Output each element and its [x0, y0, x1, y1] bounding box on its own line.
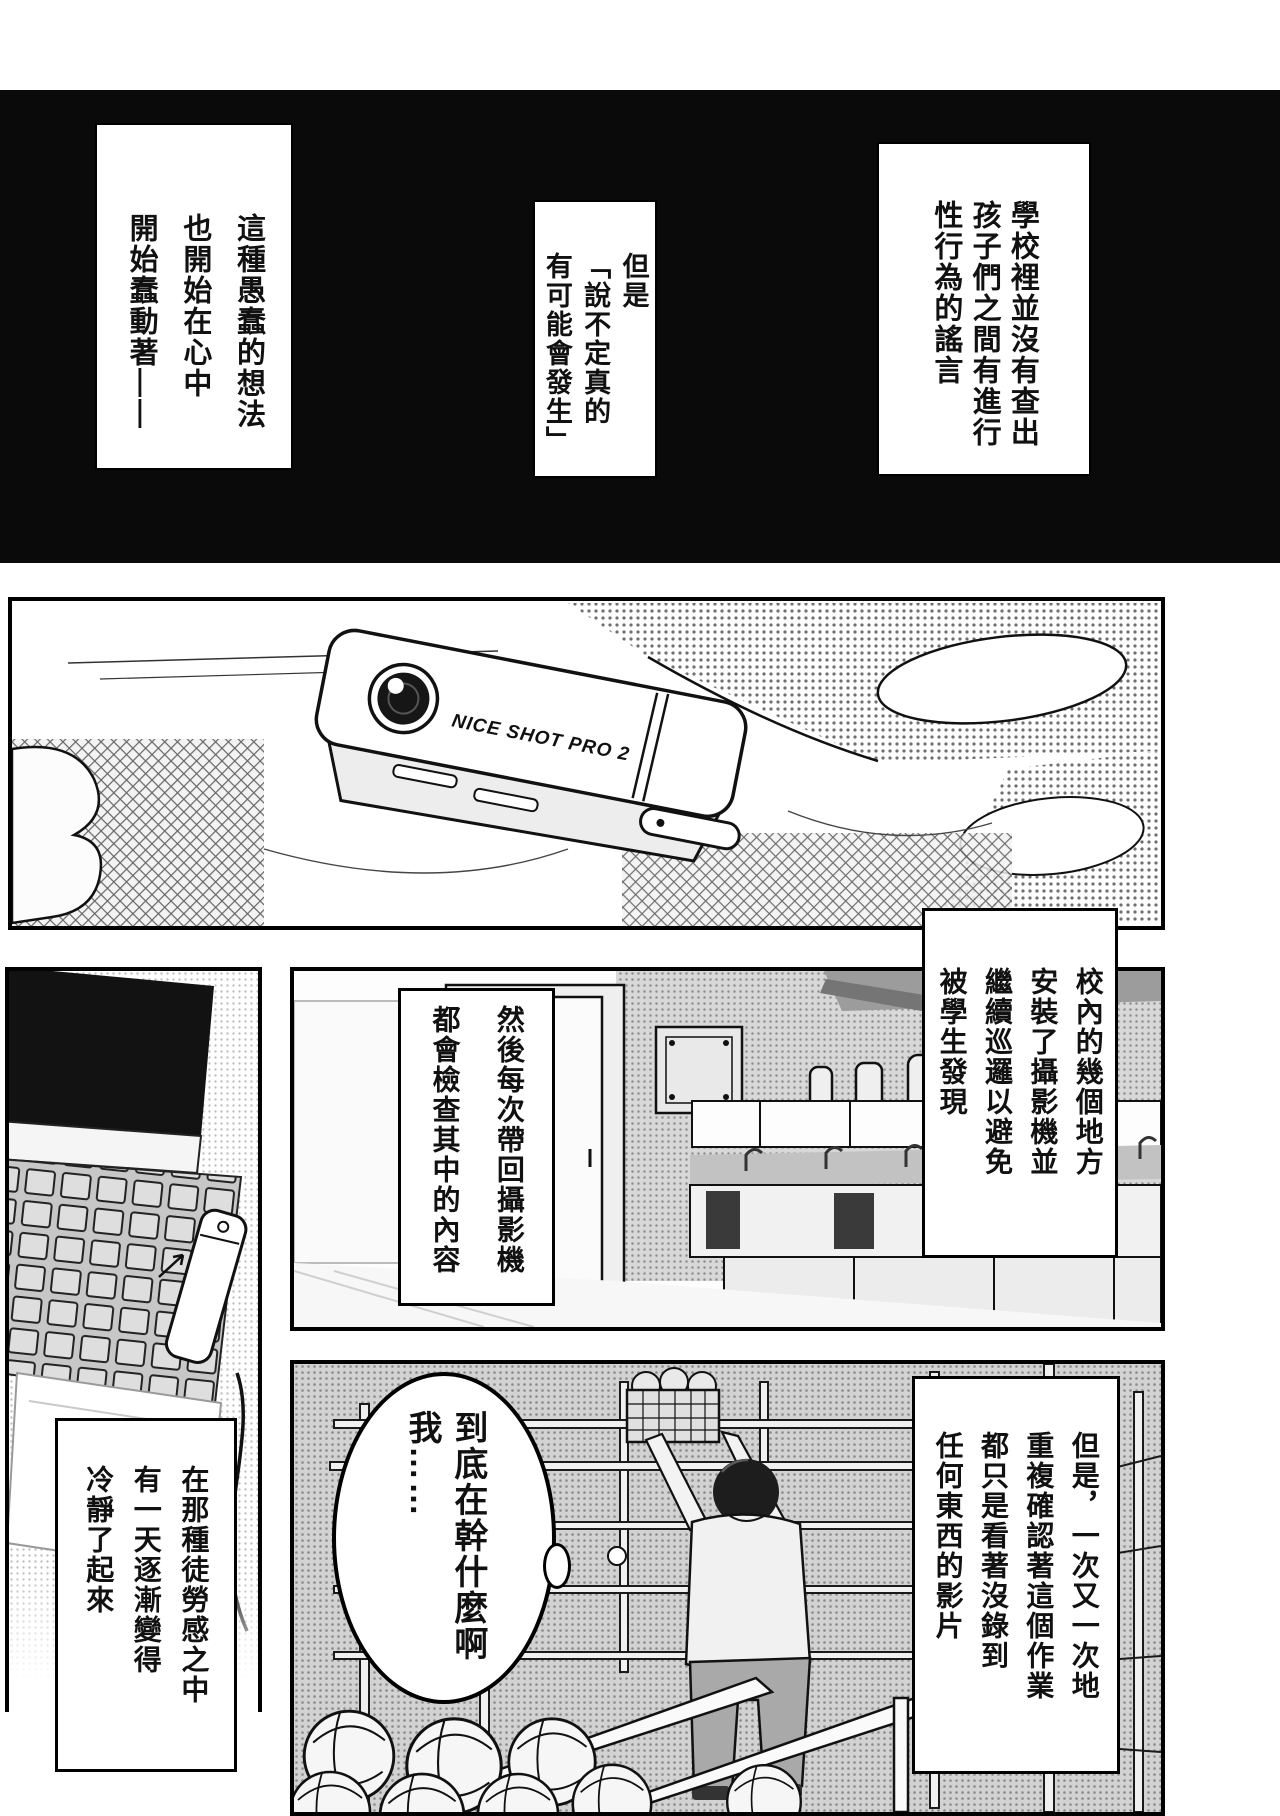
- manga-page: 學校裡並沒有查出 孩子們之間有進行 性行為的謠言 但是 「說不定真的 有可能會發…: [0, 0, 1280, 1816]
- speech-bubble: 到底在幹什麼啊 我……: [332, 1372, 556, 1704]
- wire-basket: [627, 1368, 719, 1442]
- pole-knob: [608, 1547, 626, 1565]
- narration-box-but-maybe: 但是 「說不定真的 有可能會發生」: [533, 200, 657, 478]
- narration-box-content-checked: 然後每次帶回攝影機 都會檢查其中的內容: [398, 988, 555, 1306]
- narration-text-rumor: 學校裡並沒有查出 孩子們之間有進行 性行為的謠言: [927, 200, 1042, 448]
- narration-box-calming-down: 在那種徒勞感之中 有一天逐漸變得 冷靜了起來: [55, 1418, 237, 1772]
- narration-box-foolish-idea: 這種愚蠢的想法 也開始在心中 開始蠢動著——: [95, 123, 293, 470]
- speech-bubble-text: 到底在幹什麼啊 我……: [398, 1410, 490, 1662]
- narration-text-calming-down: 在那種徒勞感之中 有一天逐漸變得 冷靜了起來: [75, 1465, 218, 1705]
- narration-text-futile-work: 但是，一次又一次地 重複確認著這個作業 都只是看著沒錄到 任何東西的影片: [925, 1431, 1106, 1701]
- narration-text-cameras-installed: 校內的幾個地方 安裝了攝影機並 繼續巡邏以避免 被學生發現: [929, 967, 1110, 1177]
- narration-text-content-checked: 然後每次帶回攝影機 都會檢查其中的內容: [412, 1005, 541, 1275]
- laptop-screen: [9, 971, 214, 1136]
- narration-box-rumor: 學校裡並沒有查出 孩子們之間有進行 性行為的謠言: [877, 142, 1091, 476]
- narration-box-futile-work: 但是，一次又一次地 重複確認著這個作業 都只是看著沒錄到 任何東西的影片: [912, 1376, 1120, 1774]
- narration-box-cameras-installed: 校內的幾個地方 安裝了攝影機並 繼續巡邏以避免 被學生發現: [922, 908, 1118, 1258]
- boy-shirt: [686, 1514, 810, 1671]
- narration-text-but-maybe: 但是 「說不定真的 有可能會發生」: [538, 252, 653, 455]
- narration-text-foolish-idea: 這種愚蠢的想法 也開始在心中 開始蠢動著——: [114, 213, 275, 430]
- panel-spy-camera-closeup: NICE SHOT PRO 2: [8, 597, 1165, 930]
- speech-bubble-tail: [543, 1543, 571, 1589]
- spy-camera-illustration: NICE SHOT PRO 2: [12, 601, 1161, 926]
